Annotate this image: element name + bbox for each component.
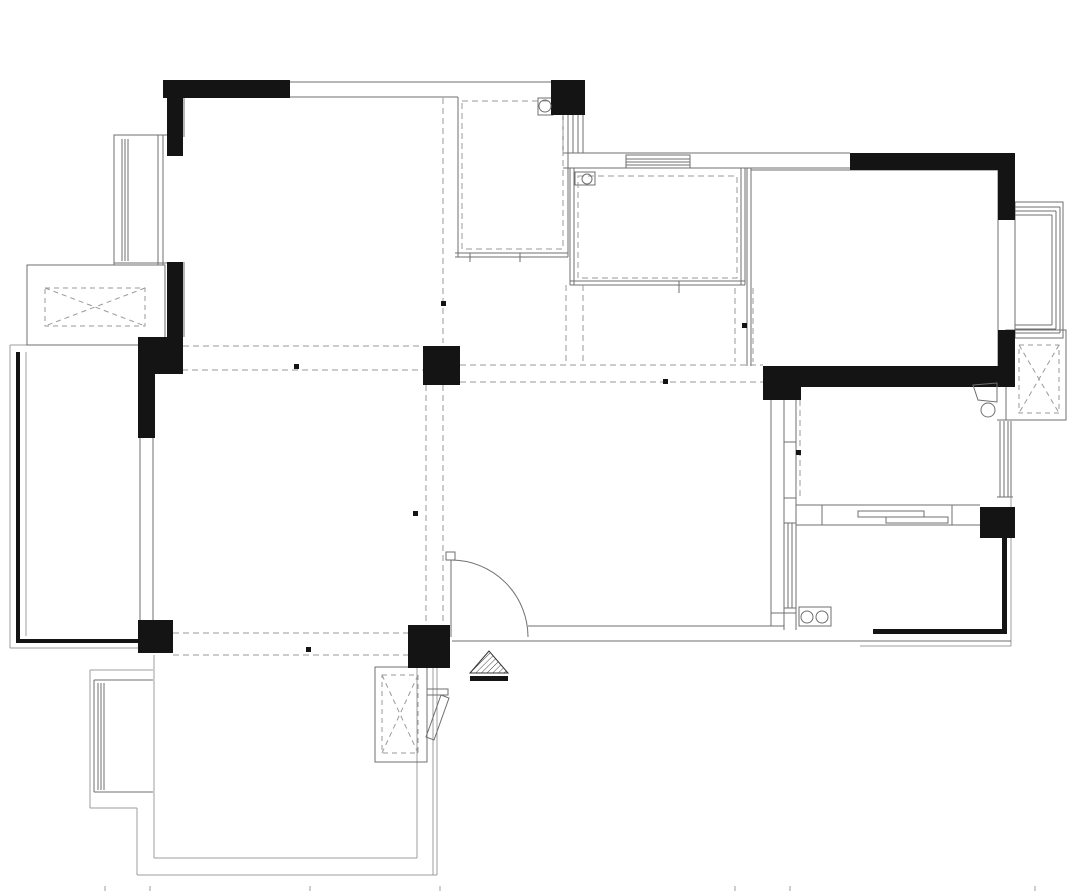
- floor-plan-page: [0, 0, 1080, 891]
- bathroom-fixture-box: [799, 607, 831, 626]
- column-left-bottom: [138, 620, 173, 653]
- entry-door-jamb: [446, 552, 455, 560]
- wall-top-left-vertical: [167, 80, 183, 156]
- hall-fixture-pipe: [539, 100, 551, 112]
- column-bottom-center: [408, 625, 450, 668]
- column-top-center: [551, 80, 585, 115]
- entry-door-swing: [451, 560, 528, 637]
- beam-marker-7: [796, 450, 801, 455]
- wall-top-right-horizontal: [850, 153, 1015, 170]
- beam-marker-2: [441, 301, 446, 306]
- wall-top-right-leg: [998, 170, 1015, 220]
- beam-marker-5: [742, 323, 747, 328]
- beam-marker-3: [413, 511, 418, 516]
- entry-arrow: [470, 651, 508, 673]
- floor-plan-drawing: [0, 0, 1080, 891]
- ac-unit-right: [1019, 345, 1059, 413]
- entry-arrow-underline: [470, 676, 508, 681]
- kitchen-fixture-pipe: [582, 174, 592, 184]
- bathroom-thick-edge-bottom: [873, 629, 1007, 634]
- bay-window-left-frame: [114, 135, 163, 265]
- balcony-thick-edge-bottom: [16, 639, 138, 643]
- ac-platform-bottom: [375, 667, 427, 762]
- beam-marker-4: [306, 647, 311, 652]
- wall-left-lower: [138, 374, 155, 438]
- ac-unit-left: [45, 288, 145, 326]
- sliding-door-panel-1: [858, 511, 924, 517]
- balcony-thick-edge-left: [16, 352, 20, 643]
- beam-marker-6: [663, 379, 668, 384]
- kitchen-ceiling-inset: [578, 176, 737, 278]
- column-bathroom-right: [980, 507, 1015, 538]
- ac-unit-bottom: [382, 675, 418, 753]
- bathroom-thick-edge-right: [1002, 538, 1007, 633]
- ac-platform-left: [27, 265, 165, 345]
- bedroom2-fixture-pipe: [981, 403, 995, 417]
- column-bedroom2-left: [763, 366, 801, 400]
- wall-left-block: [138, 337, 183, 374]
- bathroom-fixture-bowl-2: [816, 611, 828, 623]
- beam-marker-1: [294, 364, 299, 369]
- hall-ceiling-inset: [462, 101, 563, 249]
- bathroom-fixture-bowl-1: [801, 611, 813, 623]
- column-center: [423, 346, 460, 385]
- sliding-door-panel-2: [886, 517, 948, 523]
